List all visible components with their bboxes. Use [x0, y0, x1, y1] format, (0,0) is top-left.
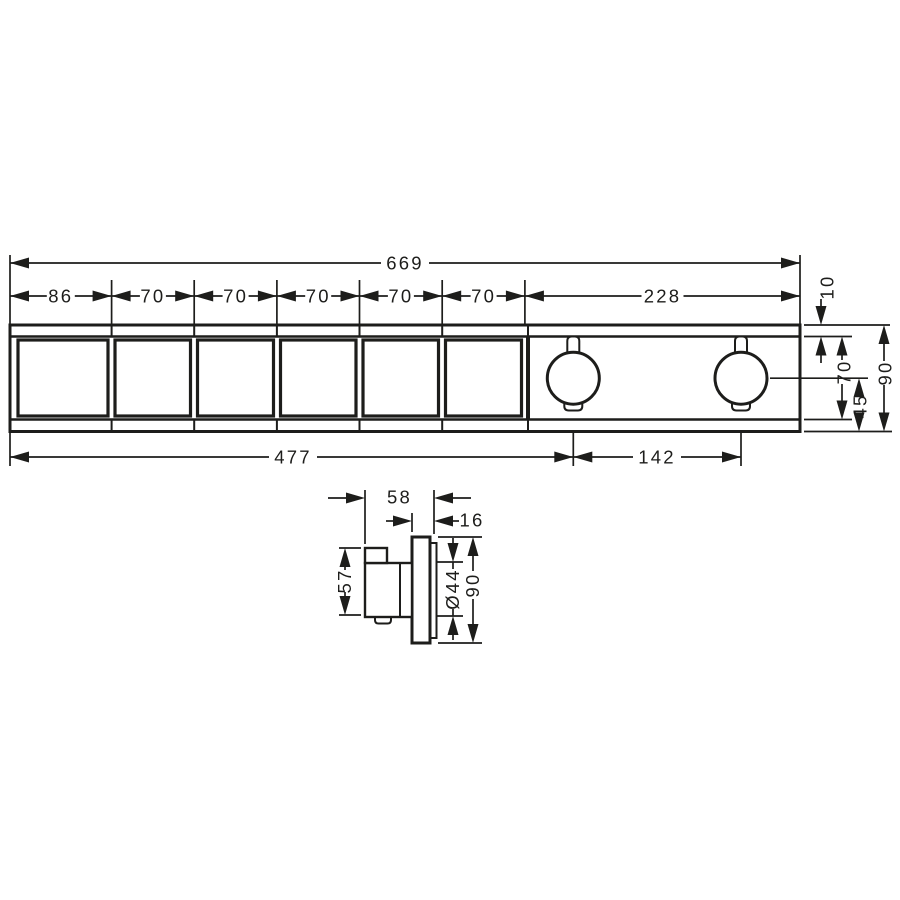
- knob-circle: [715, 352, 767, 404]
- dimension-handle-57: 57: [334, 548, 355, 615]
- dimension-plate-height-90: 90: [462, 537, 483, 643]
- technical-drawing-canvas: 669 86 70 70 70 70 70 228: [0, 0, 900, 900]
- select-button-square-3: [198, 340, 274, 416]
- dim-label-45: 45: [849, 394, 870, 419]
- dimension-knob-diameter-44: Ø44: [442, 538, 463, 640]
- dim-label-142: 142: [638, 446, 675, 467]
- dimension-lip-10: 10: [816, 275, 838, 363]
- dim-label-diameter-44: Ø44: [442, 568, 463, 610]
- dim-label-58: 58: [387, 486, 412, 507]
- dim-label-86: 86: [48, 285, 73, 306]
- select-button-square-5: [363, 340, 439, 416]
- dimension-segments: 86 70 70 70 70 70 228: [10, 285, 800, 306]
- dim-label-16: 16: [460, 509, 485, 530]
- dimension-height-90: 90: [874, 325, 895, 432]
- dim-label-70a: 70: [140, 285, 165, 306]
- plate-profile: [412, 537, 430, 643]
- front-view: [10, 325, 800, 432]
- dim-label-10: 10: [816, 275, 837, 300]
- dim-label-70d: 70: [388, 285, 413, 306]
- dim-label-669: 669: [386, 252, 423, 273]
- dimension-depth-58: 58: [328, 486, 471, 507]
- side-view: [365, 537, 437, 643]
- knob-circle: [547, 352, 599, 404]
- dim-label-90-front: 90: [874, 361, 895, 386]
- dim-label-70c: 70: [306, 285, 331, 306]
- dimension-142: 142: [573, 446, 741, 467]
- dim-label-70b: 70: [223, 285, 248, 306]
- dim-label-70-right: 70: [833, 360, 854, 385]
- select-button-square-1: [18, 340, 108, 416]
- dim-label-70e: 70: [471, 285, 496, 306]
- dimension-drawing-svg: 669 86 70 70 70 70 70 228: [0, 0, 900, 900]
- dimension-plate-16: 16: [386, 509, 484, 530]
- dim-label-57: 57: [334, 569, 355, 594]
- function-buttons: [18, 340, 522, 416]
- dim-label-228: 228: [644, 285, 681, 306]
- dim-label-90-side: 90: [462, 573, 483, 598]
- dimension-overall-width: 669: [10, 252, 800, 273]
- handle-body-profile: [365, 563, 412, 617]
- arrowhead-right: [781, 258, 800, 269]
- dimension-477: 477: [10, 446, 573, 467]
- dimension-center-45: 45: [849, 378, 870, 431]
- select-button-square-2: [115, 340, 191, 416]
- handle-grip-step: [365, 548, 387, 563]
- dim-label-477: 477: [274, 446, 311, 467]
- arrowhead-left: [10, 258, 29, 269]
- select-button-square-6: [446, 340, 522, 416]
- select-button-square-4: [281, 340, 357, 416]
